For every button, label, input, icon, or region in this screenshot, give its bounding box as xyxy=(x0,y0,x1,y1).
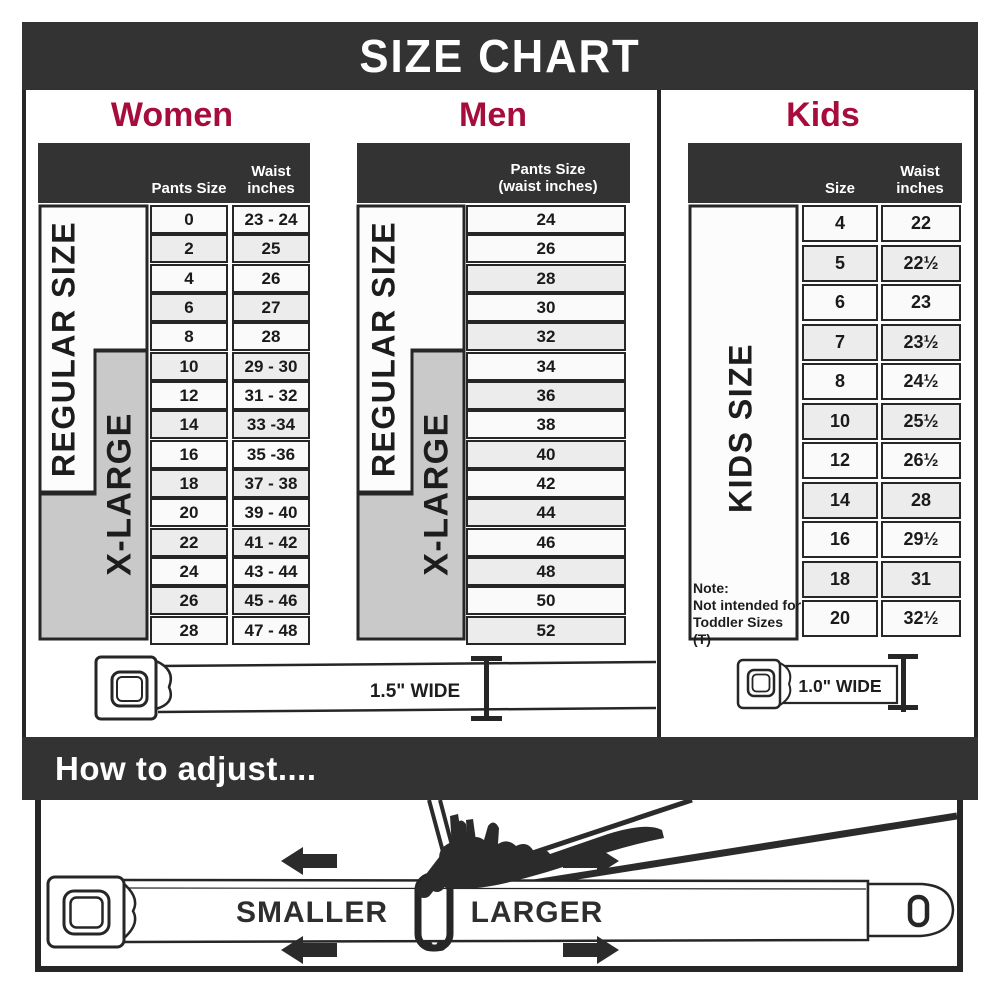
kids-table-rows: 422522½623723½824½1025½1226½14281629½183… xyxy=(802,205,962,641)
table-cell: 44 xyxy=(466,498,626,527)
table-cell: 10 xyxy=(802,403,878,440)
table-cell: 4 xyxy=(802,205,878,242)
table-cell: 0 xyxy=(150,205,228,234)
table-cell: 26½ xyxy=(881,442,961,479)
table-cell: 37 - 38 xyxy=(232,469,310,498)
table-cell: 24 xyxy=(150,557,228,586)
women-regular-label: REGULAR SIZE xyxy=(46,221,83,477)
smaller-label: SMALLER xyxy=(236,896,388,929)
table-cell: 32½ xyxy=(881,600,961,637)
table-cell: 25½ xyxy=(881,403,961,440)
table-cell: 18 xyxy=(802,561,878,598)
table-cell: 22½ xyxy=(881,245,961,282)
table-cell: 26 xyxy=(150,586,228,615)
table-cell: 14 xyxy=(802,482,878,519)
kids-buckle-button-inner xyxy=(753,675,770,692)
table-cell: 28 xyxy=(232,322,310,351)
table-cell: 29½ xyxy=(881,521,961,558)
table-cell: 12 xyxy=(150,381,228,410)
belt-tip-slot xyxy=(910,897,927,925)
kids-belt-width-label: 1.0" WIDE xyxy=(798,676,881,696)
table-cell: 36 xyxy=(466,381,626,410)
width-measure-cap-bottom xyxy=(471,716,502,721)
adult-belt-width-label: 1.5" WIDE xyxy=(370,681,460,702)
belt-strap-top-edge xyxy=(158,662,656,666)
table-cell: 26 xyxy=(232,264,310,293)
table-cell: 18 xyxy=(150,469,228,498)
table-cell: 8 xyxy=(802,363,878,400)
table-cell: 30 xyxy=(466,293,626,322)
table-cell: 4 xyxy=(150,264,228,293)
men-section-title: Men xyxy=(459,96,527,135)
table-cell: 28 xyxy=(150,616,228,645)
table-cell: 47 - 48 xyxy=(232,616,310,645)
how-to-adjust-bar: How to adjust.... xyxy=(22,737,978,800)
table-cell: 31 xyxy=(881,561,961,598)
table-cell: 26 xyxy=(466,234,626,263)
table-cell: 23 - 24 xyxy=(232,205,310,234)
table-cell: 43 - 44 xyxy=(232,557,310,586)
how-to-adjust-title: How to adjust.... xyxy=(55,750,317,788)
kids-section-title: Kids xyxy=(786,96,860,135)
men-regular-label: REGULAR SIZE xyxy=(366,221,403,477)
table-cell: 29 - 30 xyxy=(232,352,310,381)
larger-label: LARGER xyxy=(471,896,604,929)
table-cell: 6 xyxy=(150,293,228,322)
table-cell: 6 xyxy=(802,284,878,321)
kids-width-measure-stem xyxy=(901,657,906,712)
table-cell: 22 xyxy=(150,528,228,557)
table-cell: 48 xyxy=(466,557,626,586)
table-cell: 20 xyxy=(802,600,878,637)
table-cell: 34 xyxy=(466,352,626,381)
table-cell: 28 xyxy=(466,264,626,293)
table-cell: 5 xyxy=(802,245,878,282)
table-cell: 24 xyxy=(466,205,626,234)
table-cell: 10 xyxy=(150,352,228,381)
belt-strap-bottom-edge xyxy=(158,708,656,712)
table-cell: 24½ xyxy=(881,363,961,400)
kids-note: Note: Not intended for Toddler Sizes (T) xyxy=(693,580,803,648)
table-cell: 20 xyxy=(150,498,228,527)
table-cell: 41 - 42 xyxy=(232,528,310,557)
table-cell: 16 xyxy=(150,440,228,469)
adjust-illustration: SMALLER LARGER xyxy=(41,800,957,966)
men-table-rows: 242628303234363840424446485052 xyxy=(466,205,630,646)
kids-width-measure-cap-bottom xyxy=(888,705,918,710)
table-cell: 32 xyxy=(466,322,626,351)
adjust-illustration-panel: SMALLER LARGER xyxy=(35,800,963,972)
women-table-rows: 023 - 242254266278281029 - 301231 - 3214… xyxy=(150,205,310,646)
women-section-title: Women xyxy=(111,96,233,135)
table-cell: 22 xyxy=(881,205,961,242)
table-cell: 27 xyxy=(232,293,310,322)
table-cell: 52 xyxy=(466,616,626,645)
kids-size-label: KIDS SIZE xyxy=(723,343,760,513)
table-cell: 25 xyxy=(232,234,310,263)
buckle-latch xyxy=(156,661,171,709)
table-cell: 35 -36 xyxy=(232,440,310,469)
table-cell: 50 xyxy=(466,586,626,615)
buckle-button-inner xyxy=(71,898,103,928)
table-cell: 28 xyxy=(881,482,961,519)
kids-belt-diagram: 1.0" WIDE xyxy=(661,648,978,736)
men-xlarge-label: X-LARGE xyxy=(418,412,457,576)
adjuster-foot-right xyxy=(436,941,446,951)
women-xlarge-label: X-LARGE xyxy=(101,412,140,576)
arrow-left-top-icon xyxy=(281,847,337,875)
table-cell: 7 xyxy=(802,324,878,361)
buckle-button-inner xyxy=(117,677,142,701)
title-bar: SIZE CHART xyxy=(22,22,978,90)
kids-width-measure-cap-top xyxy=(888,654,918,659)
table-cell: 39 - 40 xyxy=(232,498,310,527)
table-cell: 40 xyxy=(466,440,626,469)
table-cell: 38 xyxy=(466,410,626,439)
table-cell: 16 xyxy=(802,521,878,558)
table-cell: 46 xyxy=(466,528,626,557)
table-cell: 23 xyxy=(881,284,961,321)
table-cell: 14 xyxy=(150,410,228,439)
width-measure-stem xyxy=(484,659,489,717)
width-measure-cap-top xyxy=(471,656,502,661)
adult-belt-diagram: 1.5" WIDE xyxy=(22,648,658,736)
size-chart-poster: SIZE CHART Women Men Kids Pants Size Wai… xyxy=(0,0,1000,1000)
table-cell: 42 xyxy=(466,469,626,498)
page-title: SIZE CHART xyxy=(359,29,640,83)
table-cell: 2 xyxy=(150,234,228,263)
adjuster-foot-left xyxy=(423,941,433,951)
table-cell: 8 xyxy=(150,322,228,351)
table-cell: 33 -34 xyxy=(232,410,310,439)
table-cell: 12 xyxy=(802,442,878,479)
table-cell: 31 - 32 xyxy=(232,381,310,410)
table-cell: 23½ xyxy=(881,324,961,361)
table-cell: 45 - 46 xyxy=(232,586,310,615)
